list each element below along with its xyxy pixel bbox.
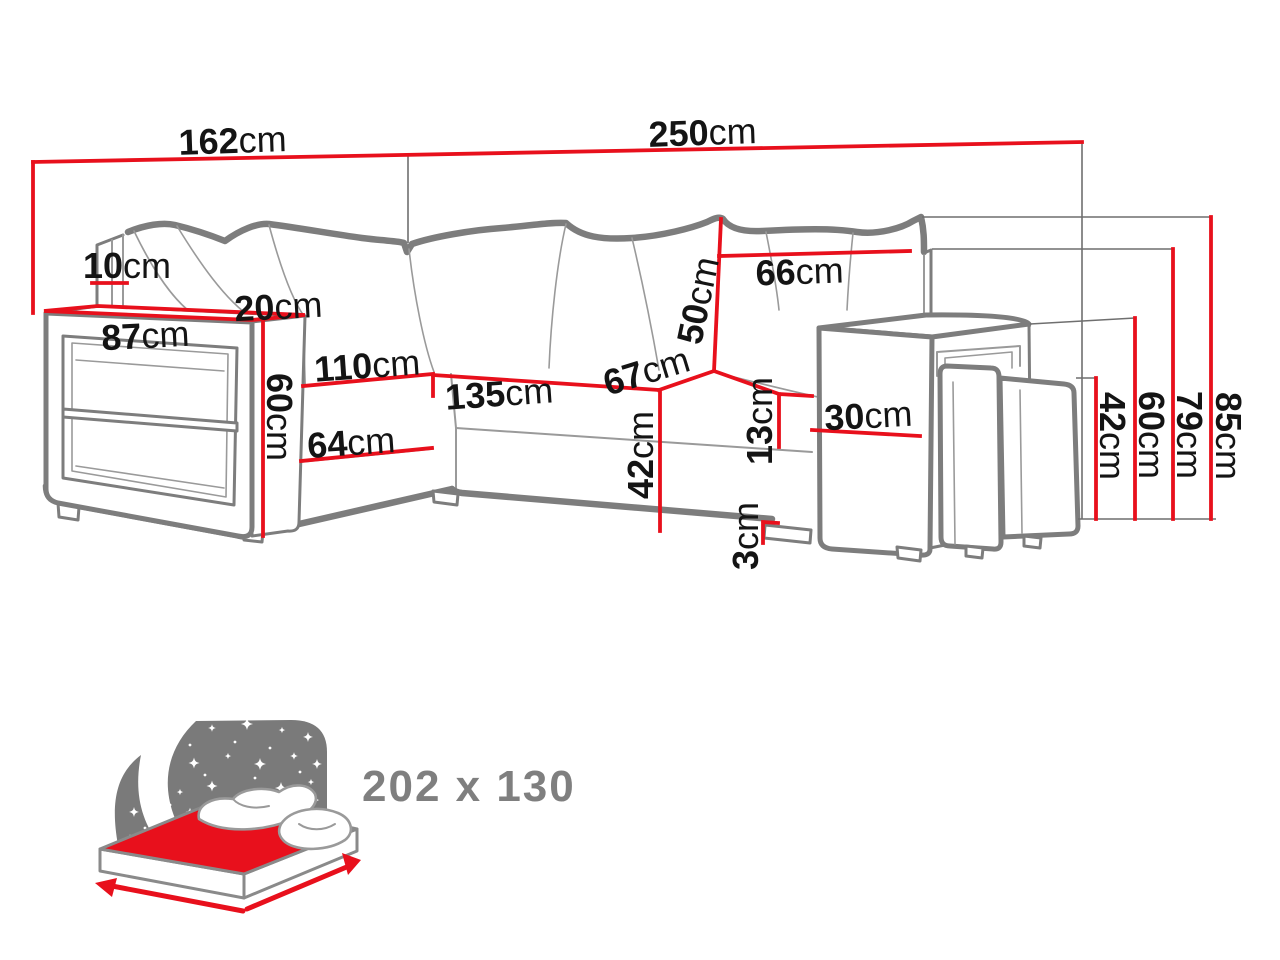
dim-label-foot-height: 3cm bbox=[725, 502, 766, 570]
dim-label-height-seat: 42cm bbox=[1092, 392, 1133, 480]
dim-label-height-backrest: 79cm bbox=[1169, 391, 1210, 479]
dim-label-armrest-height: 60cm bbox=[259, 373, 300, 461]
dim-label-seat-depth: 67cm bbox=[598, 339, 694, 404]
dim-label-seat-gap: 13cm bbox=[739, 377, 780, 465]
dim-label-armrest-top-depth: 20cm bbox=[233, 284, 323, 330]
stool-foot bbox=[966, 546, 983, 558]
dim-label-seat-height-mid: 42cm bbox=[620, 411, 661, 499]
stool-back bbox=[1000, 378, 1078, 537]
width-arrowhead bbox=[95, 878, 117, 897]
dim-label-width-left: 162cm bbox=[178, 118, 287, 163]
sofa-foot bbox=[897, 547, 921, 561]
dim-label-height-total: 85cm bbox=[1208, 392, 1249, 480]
dim-label-armrest-width: 30cm bbox=[823, 393, 913, 439]
dim-label-shelf-width: 87cm bbox=[100, 313, 190, 359]
sleeping-area-label: 202 x 130 bbox=[362, 762, 576, 811]
stool-foot bbox=[1024, 536, 1041, 548]
sofa-foot bbox=[433, 491, 458, 505]
sleeping-area-icon: 202 x 130 bbox=[95, 718, 576, 911]
dim-label-backrest-depth: 10cm bbox=[83, 245, 171, 286]
dim-label-cushion-width: 66cm bbox=[755, 249, 844, 293]
stool-set bbox=[937, 346, 1078, 558]
stool-front bbox=[940, 366, 1001, 549]
sofa-foot bbox=[764, 525, 811, 543]
dim-label-height-armrest: 60cm bbox=[1131, 391, 1172, 479]
dim-label-width-total: 250cm bbox=[648, 110, 757, 155]
dim-label-seat-width: 135cm bbox=[444, 369, 555, 417]
dim-label-chaise-width: 64cm bbox=[306, 419, 397, 466]
diagram-page: 162cm 250cm 10cm 20cm 87cm 60cm 110cm 64… bbox=[0, 0, 1280, 960]
sofa-line-art bbox=[46, 217, 1078, 561]
sofa-dimension-diagram: 162cm 250cm 10cm 20cm 87cm 60cm 110cm 64… bbox=[0, 0, 1280, 960]
dim-label-cushion-height: 50cm bbox=[669, 253, 727, 348]
depth-arrowhead bbox=[342, 853, 361, 875]
dim-label-chaise-depth: 110cm bbox=[313, 341, 422, 389]
back-cushions-top bbox=[128, 217, 924, 252]
